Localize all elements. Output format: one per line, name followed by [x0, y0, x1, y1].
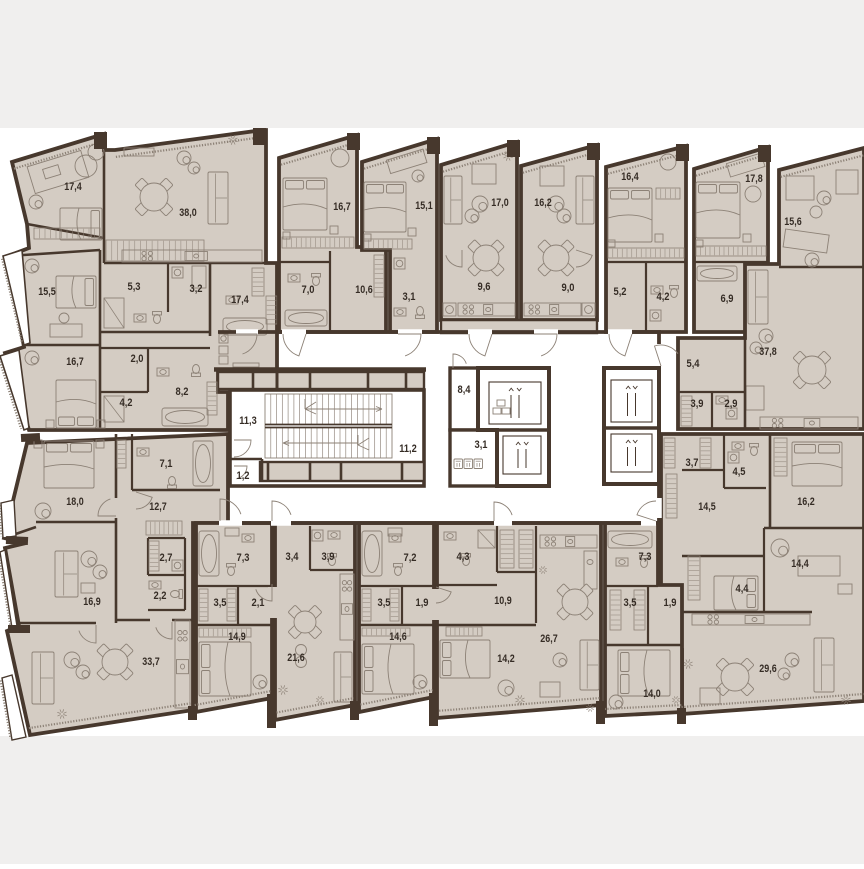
svg-text:14,0: 14,0 [643, 688, 660, 700]
svg-text:2,7: 2,7 [160, 552, 173, 564]
svg-text:15,1: 15,1 [415, 200, 432, 212]
svg-text:8,2: 8,2 [176, 386, 189, 398]
svg-text:15,6: 15,6 [784, 216, 801, 228]
svg-text:3,4: 3,4 [286, 551, 300, 563]
svg-text:33,7: 33,7 [142, 656, 159, 668]
svg-text:3,9: 3,9 [322, 551, 335, 563]
svg-text:2,1: 2,1 [252, 597, 265, 609]
svg-text:3,2: 3,2 [190, 283, 203, 295]
svg-text:2,9: 2,9 [725, 398, 738, 410]
svg-text:11,2: 11,2 [399, 443, 416, 455]
svg-text:4,2: 4,2 [657, 291, 670, 303]
svg-text:1,9: 1,9 [664, 597, 677, 609]
svg-text:26,7: 26,7 [540, 633, 557, 645]
svg-text:3,5: 3,5 [378, 597, 391, 609]
svg-text:2,2: 2,2 [154, 590, 167, 602]
svg-text:4,4: 4,4 [736, 583, 750, 595]
svg-text:14,2: 14,2 [497, 653, 514, 665]
svg-text:2,0: 2,0 [131, 353, 144, 365]
svg-text:16,2: 16,2 [534, 197, 551, 209]
svg-text:18,0: 18,0 [66, 496, 83, 508]
svg-text:15,5: 15,5 [38, 286, 55, 298]
svg-text:3,7: 3,7 [686, 457, 699, 469]
svg-text:7,2: 7,2 [404, 552, 417, 564]
svg-text:21,6: 21,6 [287, 652, 304, 664]
svg-text:17,4: 17,4 [231, 294, 249, 306]
svg-text:3,9: 3,9 [691, 398, 704, 410]
svg-text:16,7: 16,7 [333, 201, 350, 213]
svg-text:7,3: 7,3 [237, 552, 250, 564]
svg-text:4,2: 4,2 [120, 397, 133, 409]
svg-text:10,9: 10,9 [494, 595, 511, 607]
svg-text:3,1: 3,1 [403, 291, 416, 303]
svg-text:14,6: 14,6 [389, 631, 406, 643]
svg-text:16,7: 16,7 [66, 356, 83, 368]
svg-text:3,5: 3,5 [214, 597, 227, 609]
svg-text:3,1: 3,1 [475, 439, 488, 451]
svg-text:9,6: 9,6 [478, 281, 491, 293]
svg-text:8,4: 8,4 [458, 384, 472, 396]
svg-text:1,2: 1,2 [237, 470, 250, 482]
svg-text:5,4: 5,4 [687, 358, 701, 370]
svg-text:14,9: 14,9 [228, 631, 245, 643]
svg-text:1,9: 1,9 [416, 597, 429, 609]
svg-text:5,3: 5,3 [128, 281, 141, 293]
svg-text:10,6: 10,6 [355, 284, 372, 296]
svg-text:29,6: 29,6 [759, 663, 776, 675]
svg-text:5,2: 5,2 [614, 286, 627, 298]
svg-text:7,3: 7,3 [639, 551, 652, 563]
svg-text:7,1: 7,1 [160, 458, 173, 470]
svg-text:3,5: 3,5 [624, 597, 637, 609]
svg-text:38,0: 38,0 [179, 207, 196, 219]
svg-text:4,3: 4,3 [457, 551, 470, 563]
svg-text:16,2: 16,2 [797, 496, 814, 508]
svg-text:17,0: 17,0 [491, 197, 508, 209]
svg-text:17,4: 17,4 [64, 181, 82, 193]
svg-text:14,5: 14,5 [698, 501, 715, 513]
svg-text:14,4: 14,4 [791, 558, 809, 570]
svg-text:6,9: 6,9 [721, 293, 734, 305]
svg-text:17,8: 17,8 [745, 173, 762, 185]
svg-text:16,4: 16,4 [621, 171, 639, 183]
svg-text:7,0: 7,0 [302, 284, 315, 296]
svg-text:12,7: 12,7 [149, 501, 166, 513]
svg-text:11,3: 11,3 [239, 415, 256, 427]
svg-text:37,8: 37,8 [759, 346, 776, 358]
svg-text:9,0: 9,0 [562, 282, 575, 294]
svg-text:16,9: 16,9 [83, 596, 100, 608]
svg-text:4,5: 4,5 [733, 466, 746, 478]
